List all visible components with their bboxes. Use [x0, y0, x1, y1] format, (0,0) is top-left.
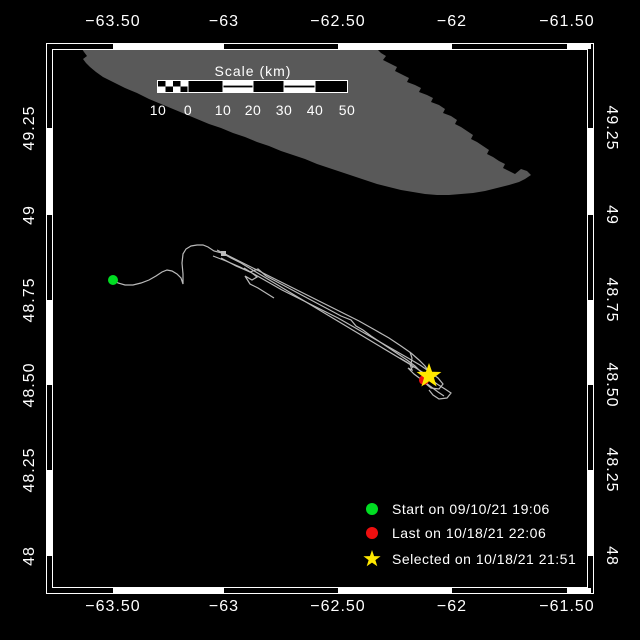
scale-bar-tick-label: 50 [339, 102, 356, 118]
axis-label-right: 48.75 [602, 277, 620, 322]
scale-bar-segment [253, 81, 254, 92]
frame-band-bottom [113, 588, 224, 593]
scale-bar-tick-label: 10 [150, 102, 167, 118]
frame-band-left [47, 300, 52, 385]
legend-start-dot [366, 503, 378, 515]
scale-bar-segment [158, 87, 166, 93]
axis-label-bottom: −63.50 [85, 598, 140, 616]
frame-band-bottom [567, 588, 591, 593]
scale-bar-segment [188, 81, 189, 92]
scale-bar-segment [223, 86, 253, 88]
scale-bar-segment [181, 87, 189, 93]
axis-label-top: −62 [437, 13, 467, 31]
scale-bar-segment [158, 81, 166, 87]
map-window: −63.50−63−62.50−62−61.50−63.50−63−62.50−… [0, 0, 640, 640]
axis-label-left: 49 [21, 205, 39, 225]
start-position-dot [108, 275, 118, 285]
frame-band-top [113, 44, 224, 49]
axis-label-left: 49.25 [21, 105, 39, 150]
scale-bar-segment [166, 87, 174, 93]
frame-band-right [588, 470, 593, 556]
axis-label-bottom: −62.50 [310, 598, 365, 616]
track-line [113, 245, 432, 379]
axis-label-right: 48.50 [602, 362, 620, 407]
scale-bar-title: Scale (km) [215, 63, 292, 79]
track-point-marker [221, 251, 226, 256]
scale-bar-segment [284, 86, 315, 88]
axis-label-left: 48.75 [21, 277, 39, 322]
legend-last-dot [366, 527, 378, 539]
axis-label-left: 48.25 [21, 447, 39, 492]
legend-label: Selected on 10/18/21 21:51 [392, 551, 576, 567]
axis-label-top: −62.50 [310, 13, 365, 31]
scale-bar-tick-label: 30 [276, 102, 293, 118]
frame-band-right [588, 300, 593, 385]
legend-selected-star [363, 550, 380, 566]
frame-band-right [588, 128, 593, 215]
frame-band-bottom [338, 588, 452, 593]
frame-band-top [338, 44, 452, 49]
legend-label: Start on 09/10/21 19:06 [392, 501, 550, 517]
map-canvas [0, 0, 640, 640]
scale-bar-segment [315, 81, 316, 92]
scale-bar-segment [284, 81, 285, 92]
scale-bar-segment [173, 87, 181, 93]
scale-bar-tick-label: 20 [245, 102, 262, 118]
scale-bar-tick-label: 0 [184, 102, 192, 118]
axis-label-top: −63.50 [85, 13, 140, 31]
axis-label-right: 48 [602, 546, 620, 566]
axis-label-right: 48.25 [602, 447, 620, 492]
frame-band-top [567, 44, 591, 49]
axis-label-right: 49 [602, 205, 620, 225]
scale-bar-segment [253, 81, 284, 92]
axis-label-bottom: −63 [209, 598, 239, 616]
scale-bar-segment [166, 81, 174, 87]
scale-bar-segment [315, 81, 347, 92]
frame-band-left [47, 128, 52, 215]
landmass [82, 49, 531, 195]
axis-label-right: 49.25 [602, 105, 620, 150]
track-line [221, 258, 451, 399]
scale-bar-segment [181, 81, 189, 87]
axis-label-top: −63 [209, 13, 239, 31]
frame-band-left [47, 470, 52, 556]
axis-label-left: 48 [21, 546, 39, 566]
scale-bar-segment [223, 81, 224, 92]
legend-label: Last on 10/18/21 22:06 [392, 525, 546, 541]
axis-label-bottom: −61.50 [539, 598, 594, 616]
scale-bar-tick-label: 40 [307, 102, 324, 118]
axis-label-bottom: −62 [437, 598, 467, 616]
scale-bar-segment [173, 81, 181, 87]
scale-bar-tick-label: 10 [215, 102, 232, 118]
scale-bar-segment [188, 81, 223, 92]
axis-label-top: −61.50 [539, 13, 594, 31]
axis-label-left: 48.50 [21, 362, 39, 407]
